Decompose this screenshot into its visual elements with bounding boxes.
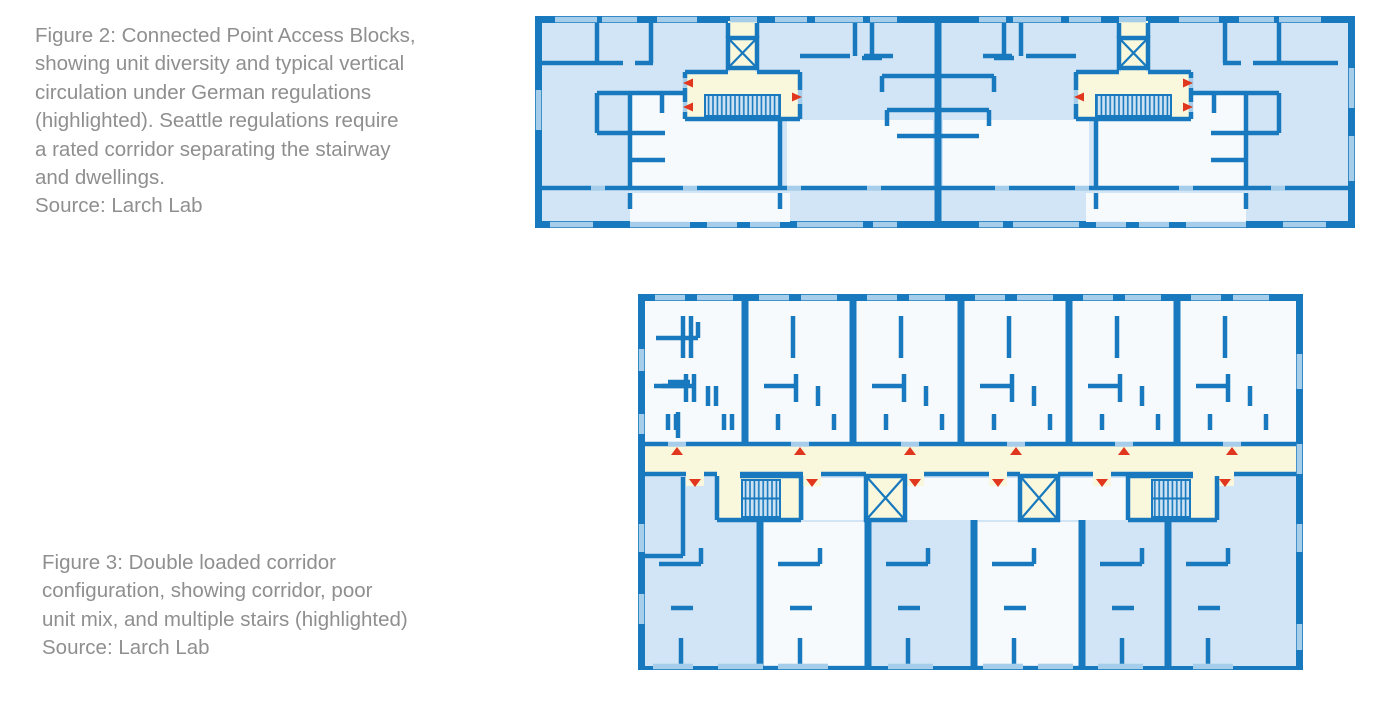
room — [787, 120, 933, 188]
window-strip — [1349, 136, 1355, 181]
room — [974, 522, 1080, 665]
figure3-caption: Figure 3: Double loaded corridor configu… — [42, 549, 494, 663]
window-strip — [1349, 68, 1355, 108]
figure2-source: Source: Larch Lab — [35, 192, 487, 220]
stair-icon — [705, 95, 780, 116]
figure3-source: Source: Larch Lab — [42, 634, 494, 662]
window-strip — [536, 90, 542, 130]
figure3-caption-text: Figure 3: Double loaded corridor configu… — [42, 549, 494, 634]
figure3-plan-image — [638, 294, 1303, 670]
room — [763, 522, 866, 665]
page: Figure 2: Connected Point Access Blocks,… — [0, 0, 1385, 701]
figure2-caption-text: Figure 2: Connected Point Access Blocks,… — [35, 22, 487, 192]
room — [630, 193, 790, 222]
figure2-plan-image — [535, 16, 1355, 228]
figure2-caption: Figure 2: Connected Point Access Blocks,… — [35, 22, 487, 221]
